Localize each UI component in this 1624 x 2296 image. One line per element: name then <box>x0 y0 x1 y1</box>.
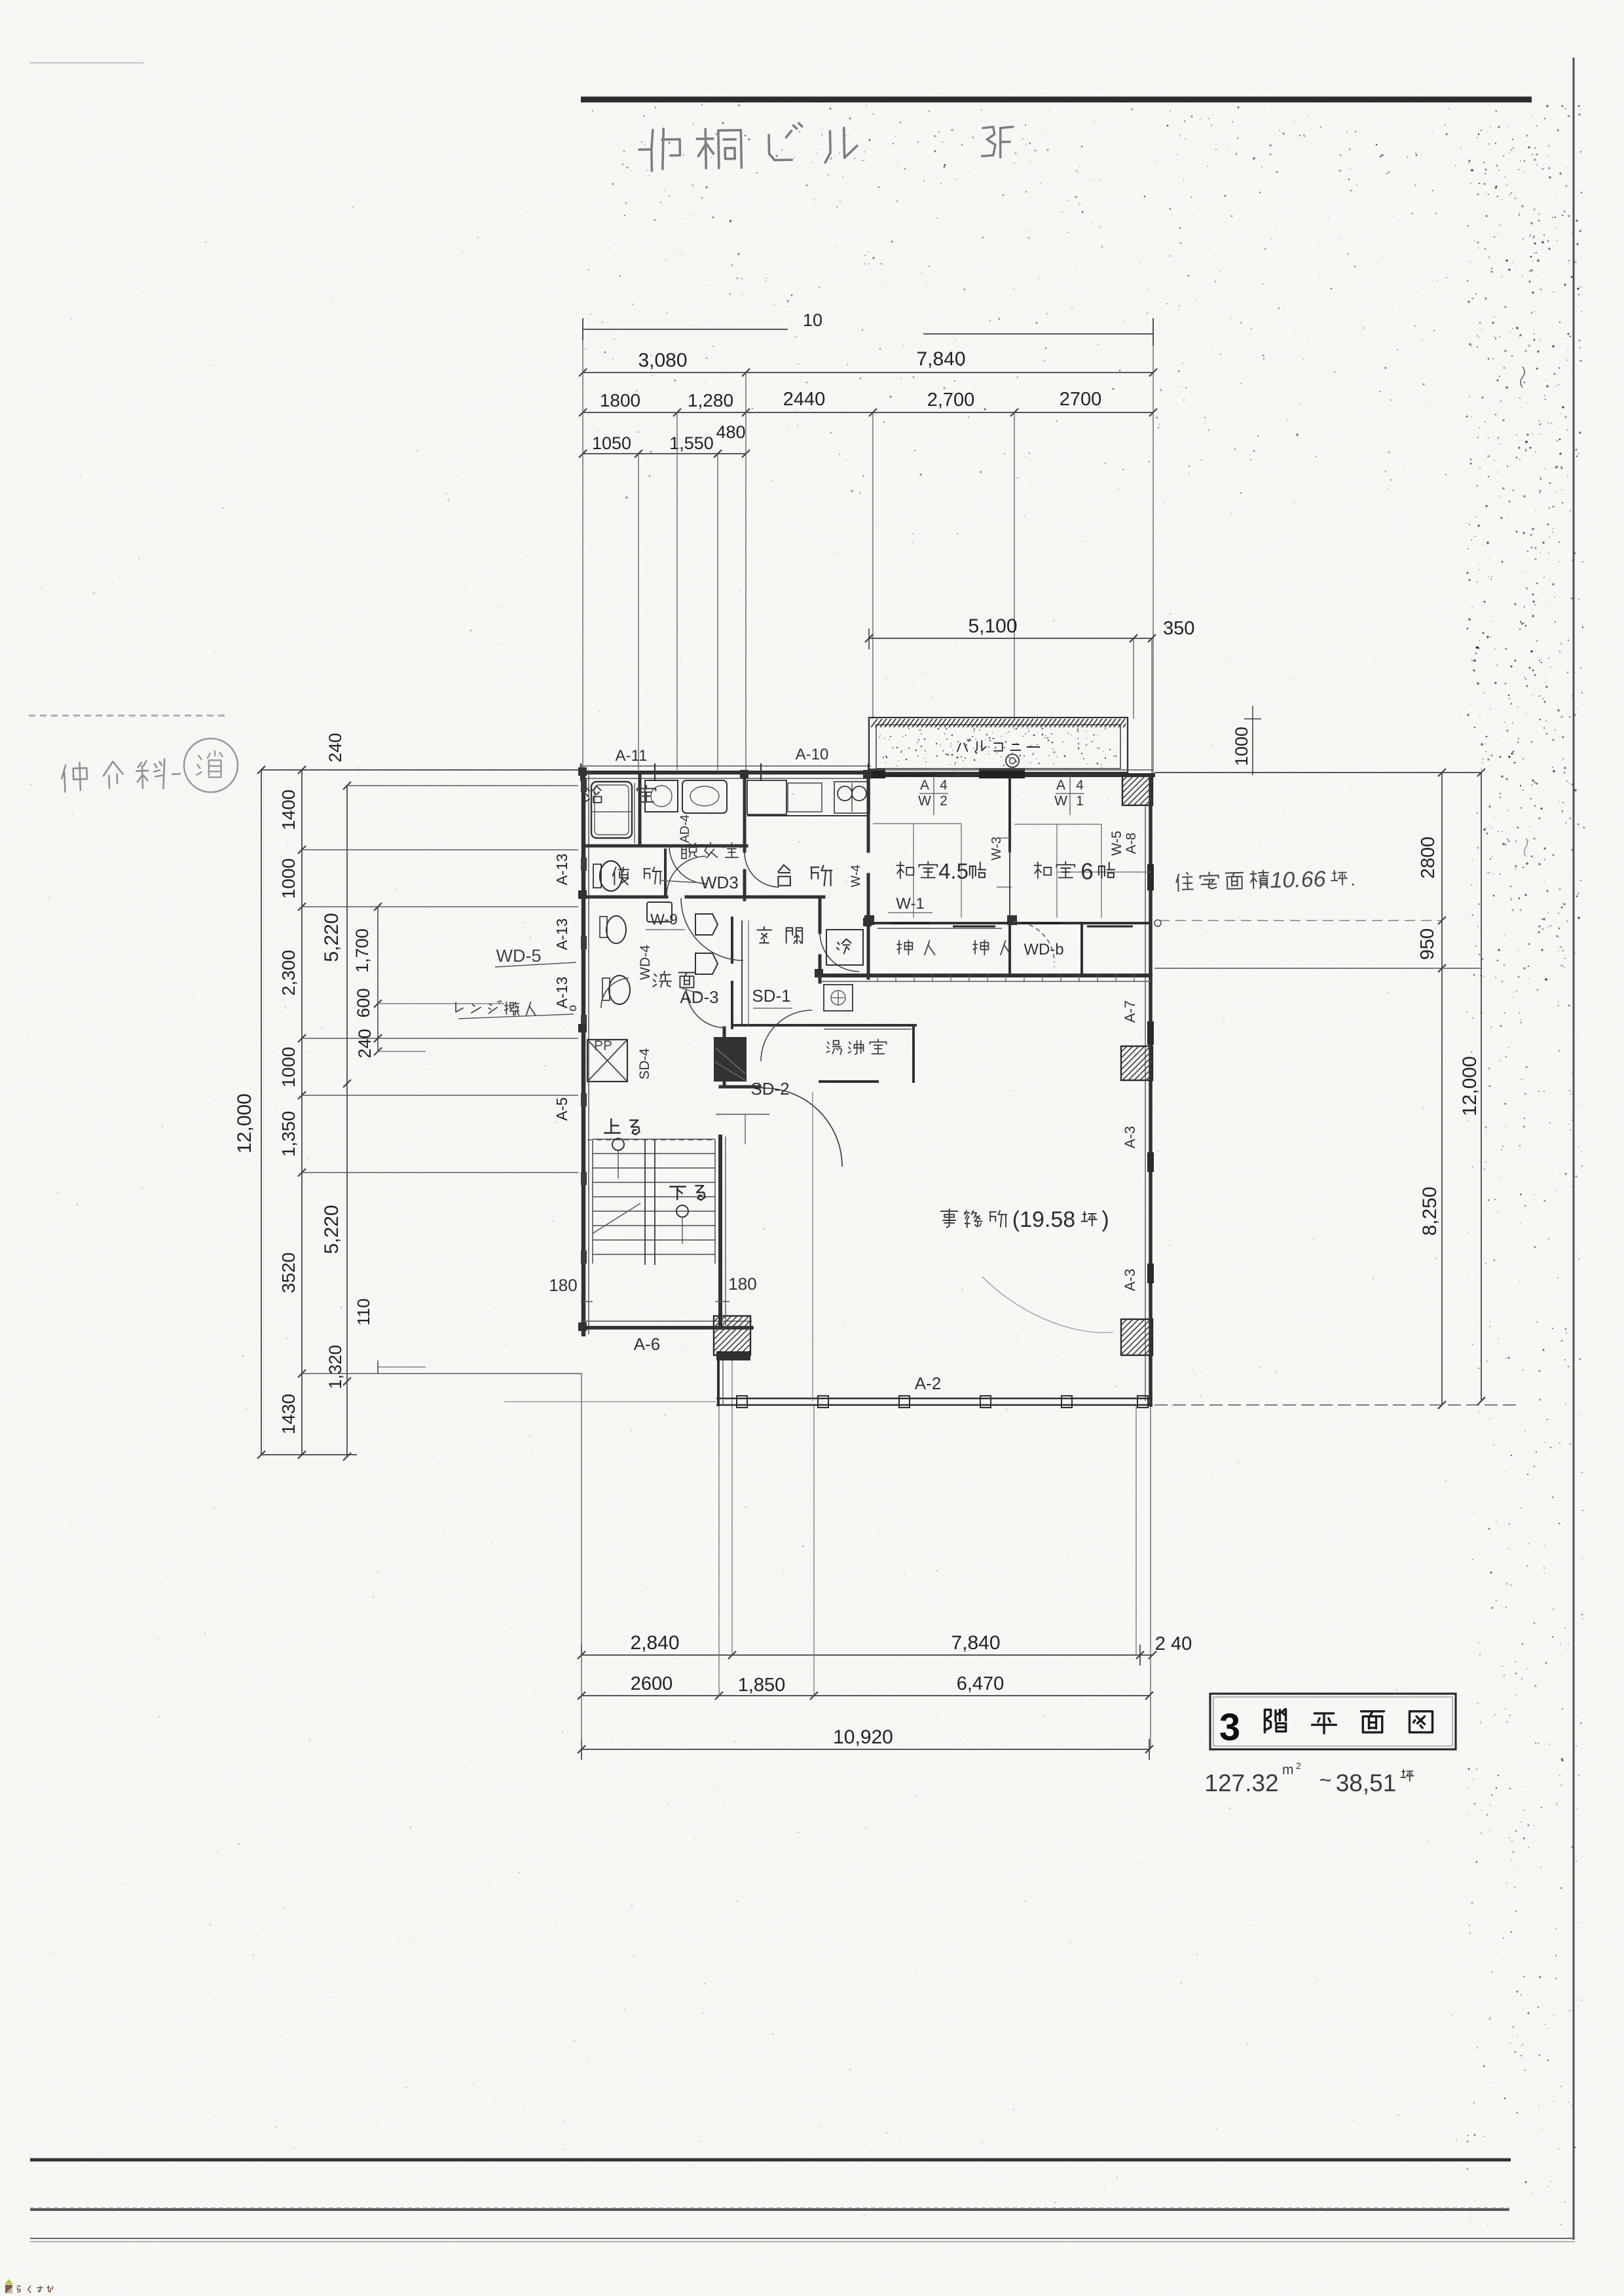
svg-text:W-5: W-5 <box>1109 831 1124 856</box>
svg-text:A-6: A-6 <box>634 1334 660 1354</box>
svg-text:A-13: A-13 <box>553 977 570 1009</box>
svg-text:1,700: 1,700 <box>352 928 372 973</box>
svg-text:A-13: A-13 <box>553 854 570 886</box>
svg-text:1: 1 <box>1076 793 1084 809</box>
svg-text:12,000: 12,000 <box>234 1093 255 1154</box>
svg-text:W: W <box>1054 793 1067 809</box>
svg-text:7,840: 7,840 <box>916 348 965 370</box>
svg-text:2,700: 2,700 <box>927 390 975 410</box>
svg-text:A-8: A-8 <box>1124 833 1139 854</box>
svg-text:SD-1: SD-1 <box>752 986 790 1006</box>
svg-text:10,920: 10,920 <box>833 1726 893 1748</box>
svg-text:2440: 2440 <box>783 389 826 410</box>
svg-text:AD-4: AD-4 <box>678 814 692 843</box>
svg-text:m: m <box>1282 1762 1294 1777</box>
svg-text:W-3: W-3 <box>989 837 1004 860</box>
svg-text:480: 480 <box>716 422 745 442</box>
svg-text:WD-5: WD-5 <box>496 946 542 966</box>
svg-text:SD-2: SD-2 <box>750 1079 789 1099</box>
svg-text:10.66: 10.66 <box>1270 867 1326 893</box>
svg-text:W: W <box>918 793 931 809</box>
svg-text:5,100: 5,100 <box>968 615 1017 637</box>
svg-text:): ) <box>1101 1207 1109 1232</box>
svg-text:W-4: W-4 <box>849 864 863 887</box>
svg-text:1000: 1000 <box>278 1047 299 1087</box>
svg-text:A-2: A-2 <box>915 1374 941 1393</box>
svg-text:6,470: 6,470 <box>957 1673 1005 1694</box>
svg-text:1,320: 1,320 <box>325 1345 345 1389</box>
svg-text:W-1: W-1 <box>896 895 925 913</box>
svg-text:1400: 1400 <box>278 790 299 830</box>
svg-text:1800: 1800 <box>600 390 640 410</box>
svg-text:A-13: A-13 <box>553 919 570 951</box>
svg-text:1000: 1000 <box>1232 727 1251 766</box>
svg-text:AD-3: AD-3 <box>680 987 718 1007</box>
svg-text:WD-b: WD-b <box>1024 941 1063 958</box>
svg-text:1050: 1050 <box>592 433 631 453</box>
svg-text:A-3: A-3 <box>1122 1126 1138 1148</box>
svg-text:A: A <box>920 778 929 793</box>
svg-text:2700: 2700 <box>1060 389 1102 410</box>
svg-text:240: 240 <box>355 1029 375 1058</box>
svg-text:W-9: W-9 <box>650 911 678 928</box>
svg-text:6: 6 <box>1080 859 1093 884</box>
svg-text:2,840: 2,840 <box>630 1632 679 1654</box>
svg-text:1000: 1000 <box>278 858 299 899</box>
svg-text:38,51: 38,51 <box>1336 1770 1397 1796</box>
svg-text:180: 180 <box>549 1275 577 1295</box>
svg-text:2600: 2600 <box>631 1673 673 1694</box>
svg-text:(19.58: (19.58 <box>1012 1207 1075 1232</box>
svg-text:A: A <box>1056 778 1065 793</box>
svg-text:A-7: A-7 <box>1122 1000 1138 1023</box>
svg-text:2,300: 2,300 <box>278 950 299 996</box>
svg-text:A-3: A-3 <box>1122 1269 1138 1291</box>
svg-text:o: o <box>566 1005 579 1011</box>
svg-text:PP: PP <box>594 1038 612 1053</box>
svg-text:5,220: 5,220 <box>321 1205 342 1254</box>
svg-text:4: 4 <box>940 778 948 793</box>
svg-text:7,840: 7,840 <box>951 1632 1000 1654</box>
svg-text:A-10: A-10 <box>796 746 829 763</box>
svg-text:8,250: 8,250 <box>1419 1186 1441 1235</box>
svg-text:2800: 2800 <box>1418 837 1439 879</box>
svg-text:A-11: A-11 <box>616 747 648 765</box>
svg-text:3: 3 <box>1219 1706 1240 1749</box>
svg-text:600: 600 <box>354 988 373 1017</box>
svg-text:240: 240 <box>325 733 345 762</box>
svg-text:WD3: WD3 <box>701 873 739 892</box>
svg-text:~: ~ <box>1319 1768 1332 1792</box>
svg-text:3,080: 3,080 <box>638 350 687 371</box>
svg-text:10: 10 <box>803 310 822 330</box>
svg-text:1,350: 1,350 <box>278 1111 299 1157</box>
svg-text:127.32: 127.32 <box>1204 1770 1278 1796</box>
svg-text:WD-4: WD-4 <box>638 945 653 980</box>
svg-text:1,550: 1,550 <box>669 433 714 453</box>
svg-text:.: . <box>1350 869 1356 890</box>
svg-text:1,280: 1,280 <box>688 390 733 410</box>
svg-text:1,850: 1,850 <box>738 1675 786 1696</box>
svg-text:2: 2 <box>1296 1760 1301 1771</box>
svg-text:1430: 1430 <box>278 1394 299 1434</box>
svg-text:A-5: A-5 <box>553 1097 570 1121</box>
svg-text:180: 180 <box>728 1274 756 1294</box>
svg-text:4.5: 4.5 <box>938 859 969 883</box>
svg-text:4: 4 <box>1076 778 1084 793</box>
svg-text:5,220: 5,220 <box>321 913 342 962</box>
svg-text:350: 350 <box>1163 618 1194 639</box>
svg-text:2: 2 <box>940 793 948 809</box>
svg-text:950: 950 <box>1417 928 1438 960</box>
svg-text:2 40: 2 40 <box>1155 1633 1192 1654</box>
svg-text:SD-4: SD-4 <box>637 1048 652 1080</box>
svg-text:110: 110 <box>354 1298 373 1325</box>
svg-text:12,000: 12,000 <box>1459 1056 1481 1116</box>
svg-text:3520: 3520 <box>278 1252 299 1293</box>
